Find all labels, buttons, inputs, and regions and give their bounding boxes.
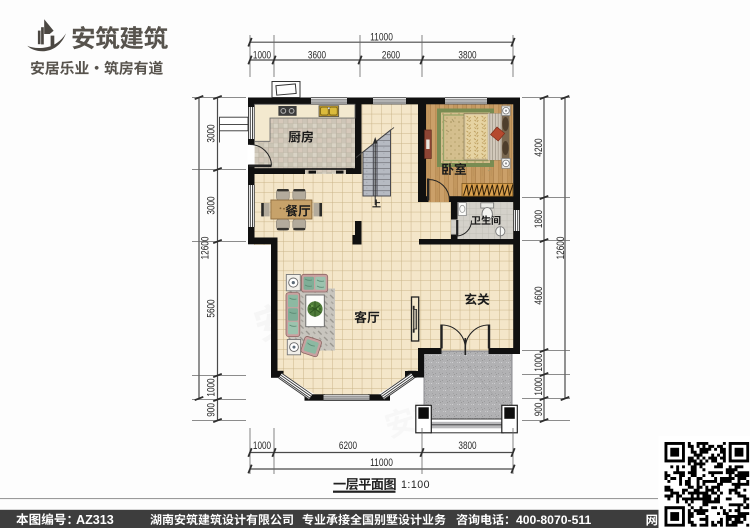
svg-text:12600: 12600	[200, 237, 212, 260]
svg-text:3000: 3000	[206, 196, 218, 214]
svg-text:4200: 4200	[533, 138, 545, 156]
svg-text:1000: 1000	[253, 440, 271, 452]
svg-text:1800: 1800	[533, 210, 545, 228]
svg-text:12600: 12600	[555, 237, 567, 260]
svg-text:1000: 1000	[253, 49, 271, 61]
svg-text:1000: 1000	[206, 378, 218, 396]
svg-text:5600: 5600	[206, 299, 218, 317]
svg-text:1000: 1000	[533, 377, 545, 395]
svg-text:1:100: 1:100	[401, 479, 430, 491]
svg-text:3800: 3800	[458, 440, 476, 452]
svg-text:AZ313: AZ313	[76, 513, 114, 527]
svg-text:6200: 6200	[339, 440, 357, 452]
svg-text:3000: 3000	[206, 124, 218, 142]
svg-text:400-8070-511: 400-8070-511	[516, 513, 591, 527]
svg-text:900: 900	[206, 403, 218, 417]
svg-text:3800: 3800	[458, 49, 476, 61]
svg-text:3600: 3600	[308, 49, 326, 61]
svg-text:11000: 11000	[370, 457, 393, 469]
svg-text:2600: 2600	[382, 49, 400, 61]
svg-text:11000: 11000	[370, 31, 393, 43]
svg-text:4600: 4600	[533, 286, 545, 304]
svg-text:1000: 1000	[533, 353, 545, 371]
svg-text:900: 900	[533, 403, 545, 417]
